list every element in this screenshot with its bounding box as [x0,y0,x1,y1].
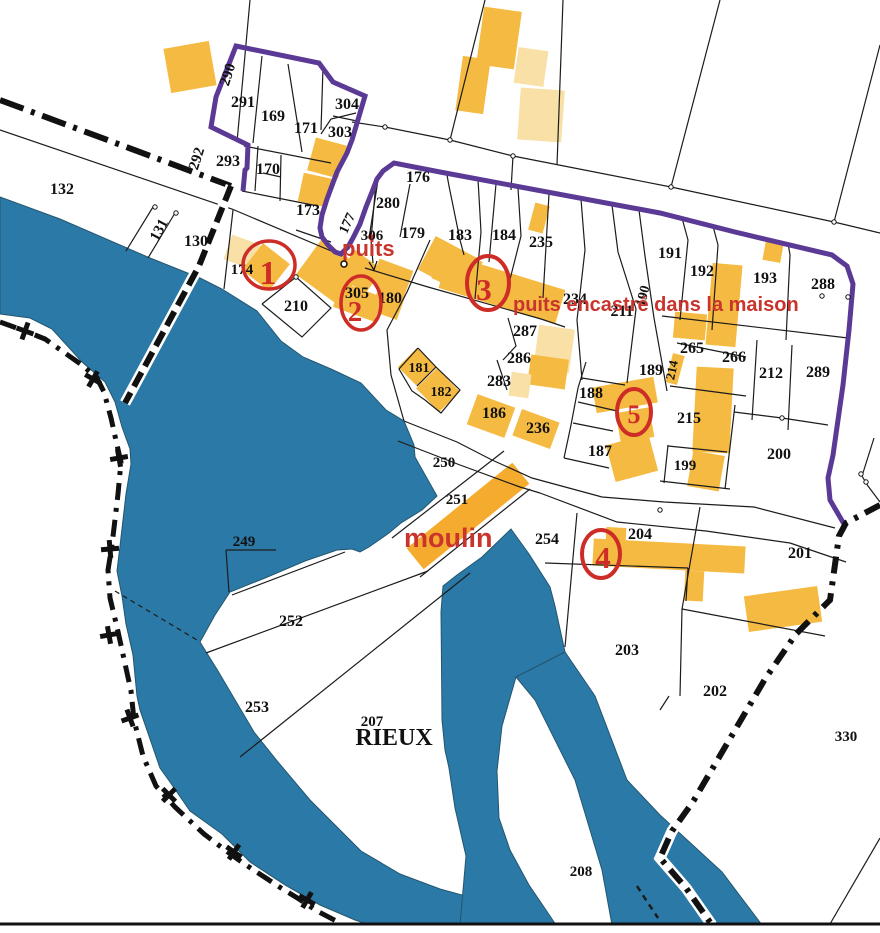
svg-text:191: 191 [658,245,682,262]
svg-text:289: 289 [806,364,830,381]
svg-text:170: 170 [256,161,280,178]
svg-text:201: 201 [788,545,812,562]
svg-text:202: 202 [703,683,727,700]
svg-text:199: 199 [674,458,697,474]
svg-text:179: 179 [401,225,425,242]
svg-text:181: 181 [409,361,430,376]
svg-text:288: 288 [811,276,835,293]
svg-text:193: 193 [753,270,777,287]
svg-text:5: 5 [628,400,641,429]
svg-text:169: 169 [261,108,285,125]
svg-text:182: 182 [431,385,452,400]
svg-text:puits: puits [342,236,395,261]
svg-text:1: 1 [260,255,277,292]
svg-text:253: 253 [245,699,269,716]
svg-text:249: 249 [233,534,256,550]
svg-text:304: 304 [335,96,359,113]
svg-text:236: 236 [526,420,550,437]
svg-text:250: 250 [433,455,456,471]
svg-text:moulin: moulin [404,523,493,553]
svg-text:210: 210 [284,298,308,315]
svg-text:200: 200 [767,446,791,463]
svg-text:283: 283 [487,373,511,390]
svg-text:192: 192 [690,263,714,280]
svg-text:2: 2 [348,296,363,328]
svg-text:4: 4 [595,540,611,575]
svg-text:252: 252 [279,613,303,630]
svg-text:251: 251 [446,492,469,508]
svg-text:132: 132 [50,181,74,198]
svg-text:puits encastré dans la maison: puits encastré dans la maison [513,294,799,316]
svg-text:291: 291 [231,94,255,111]
svg-text:330: 330 [835,729,858,745]
svg-text:188: 188 [579,385,603,402]
svg-text:254: 254 [535,531,559,548]
svg-text:286: 286 [507,350,531,367]
svg-text:186: 186 [482,405,506,422]
svg-text:183: 183 [448,227,472,244]
svg-text:173: 173 [296,202,320,219]
svg-text:287: 287 [513,323,537,340]
svg-text:187: 187 [588,443,612,460]
svg-text:203: 203 [615,642,639,659]
svg-text:215: 215 [677,410,701,427]
svg-text:3: 3 [476,272,492,307]
svg-text:235: 235 [529,234,553,251]
svg-text:189: 189 [639,362,663,379]
svg-text:212: 212 [759,365,783,382]
svg-text:208: 208 [570,864,593,880]
svg-text:204: 204 [628,526,652,543]
svg-text:171: 171 [294,120,318,137]
svg-text:266: 266 [722,349,746,366]
svg-text:130: 130 [184,233,208,250]
svg-text:280: 280 [376,195,400,212]
svg-text:265: 265 [680,340,704,357]
svg-text:184: 184 [492,227,516,244]
svg-text:RIEUX: RIEUX [355,725,433,751]
svg-text:303: 303 [328,124,352,141]
svg-text:176: 176 [406,169,430,186]
svg-text:293: 293 [216,153,240,170]
